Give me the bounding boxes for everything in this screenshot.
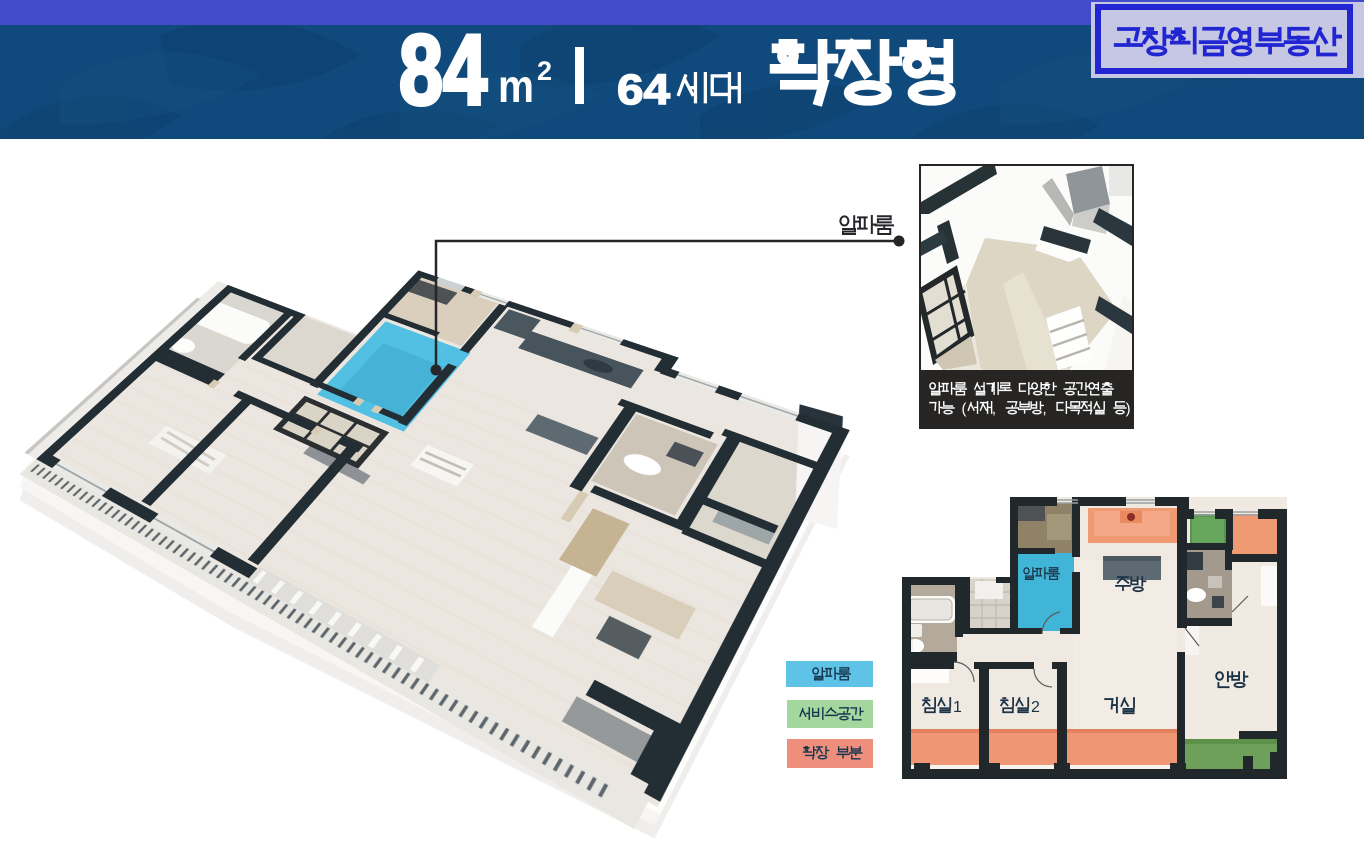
svg-text:2: 2 — [1031, 699, 1040, 716]
svg-text:1: 1 — [953, 699, 962, 716]
